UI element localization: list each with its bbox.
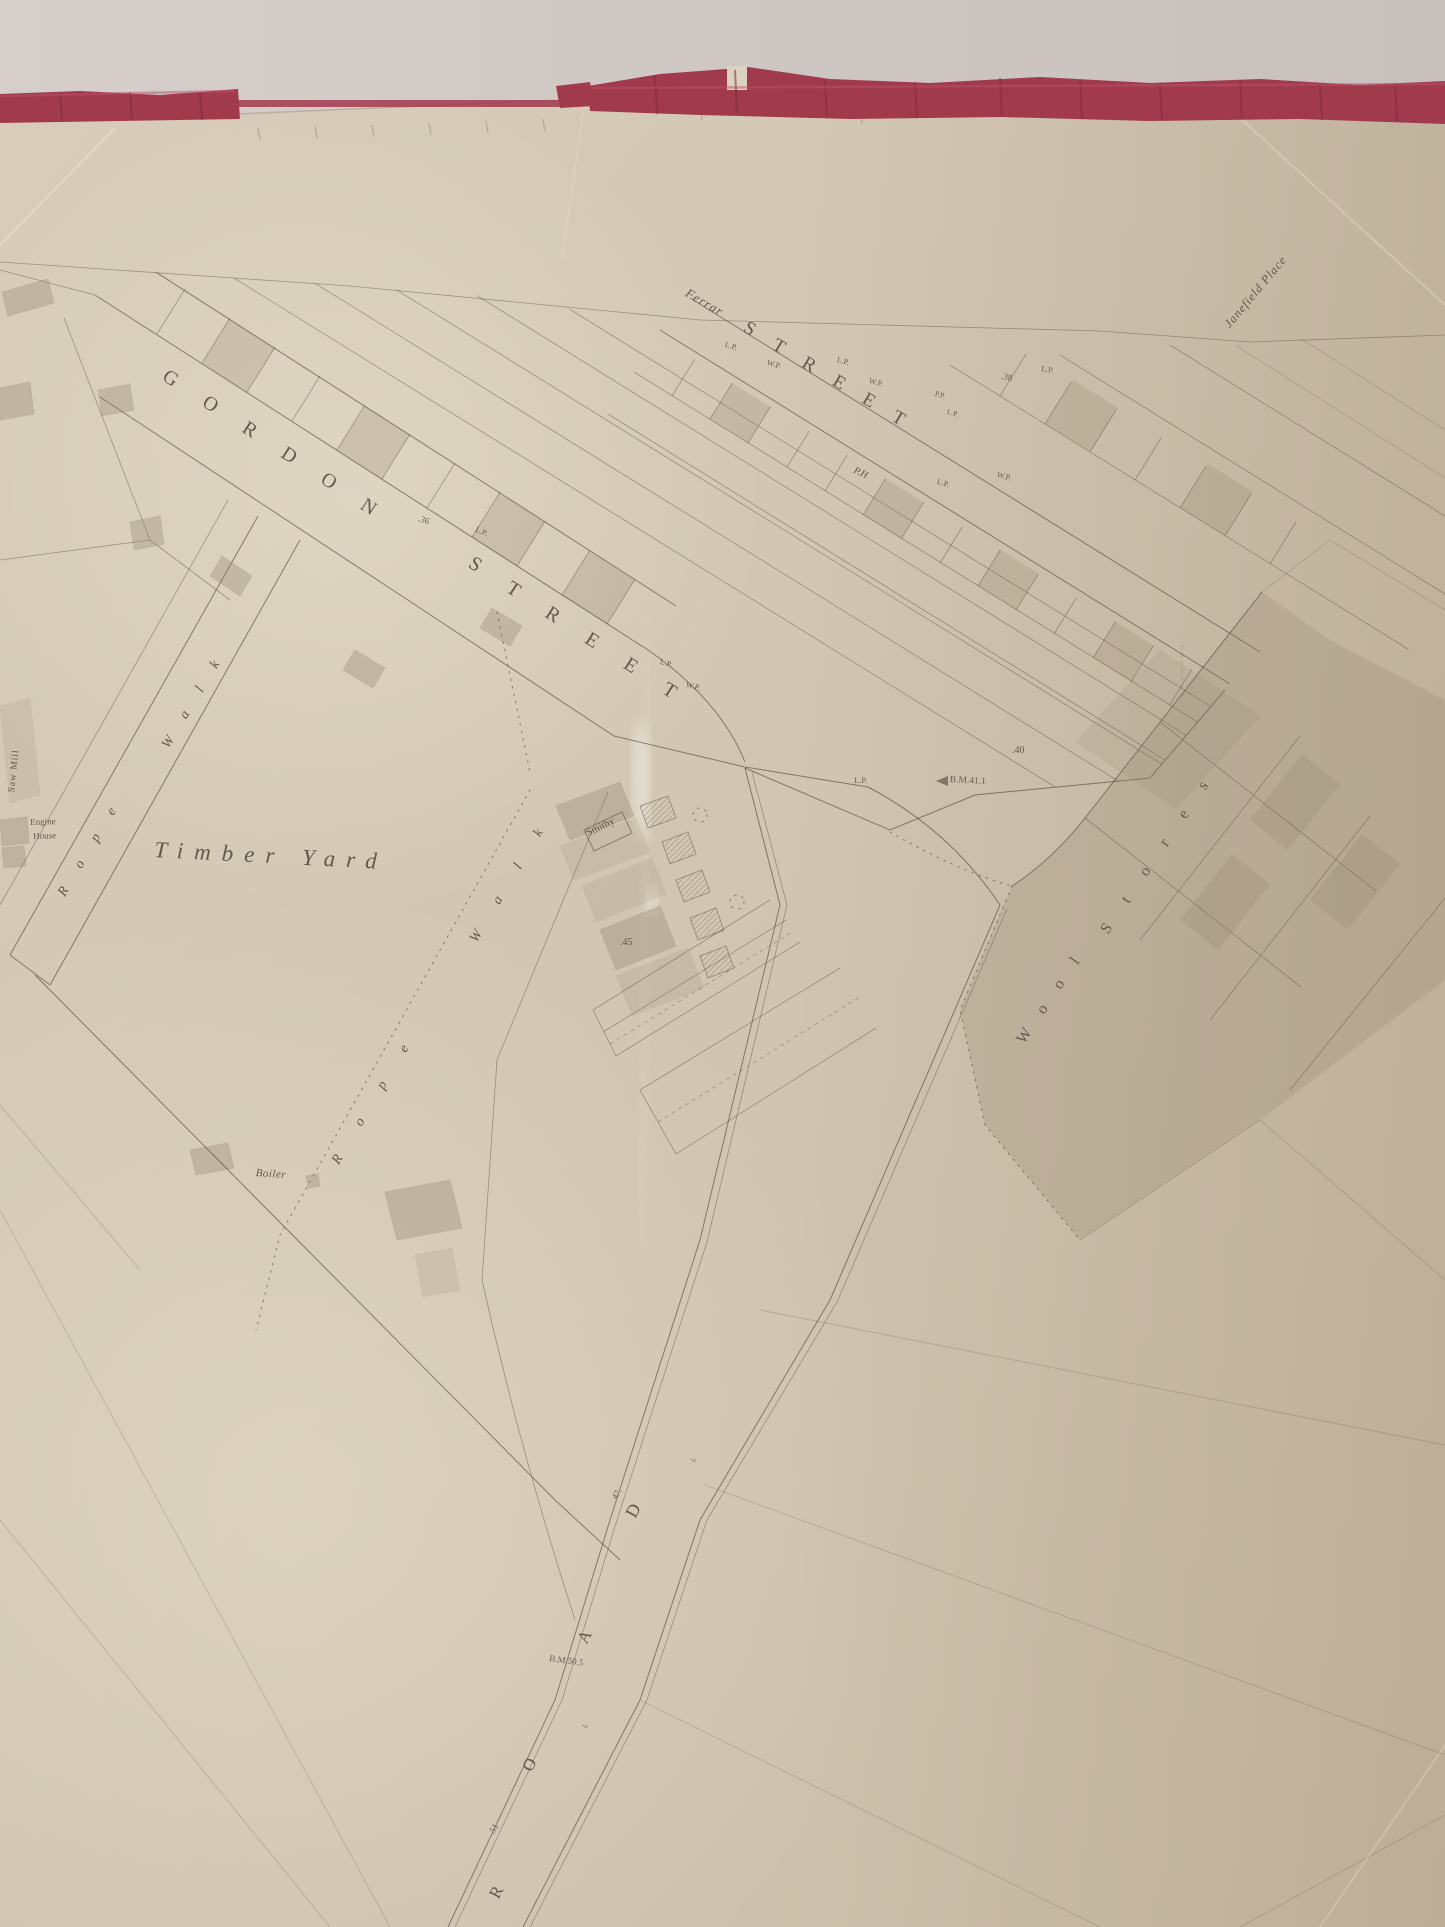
- map-label: P.P.: [934, 390, 946, 400]
- map-label: Rope: [56, 785, 132, 899]
- map-label: O: [519, 1755, 540, 1774]
- map-label: Janefield Place: [1222, 254, 1289, 330]
- map-label: L.P.: [474, 526, 488, 538]
- map-label: Boiler: [255, 1168, 286, 1181]
- map-label: W.P.: [868, 377, 884, 388]
- map-label: D: [622, 1501, 644, 1521]
- map-label: GORDON: [159, 366, 408, 537]
- map-label: STREET: [740, 318, 928, 441]
- map-label: W.P.: [766, 359, 782, 370]
- map-label: L.P.: [659, 658, 673, 669]
- map-label: R: [486, 1883, 506, 1901]
- map-label: L.P.: [946, 408, 959, 418]
- map-label: .38: [1000, 372, 1013, 383]
- map-label: L: [582, 1722, 590, 1729]
- map-label: Rope: [330, 1012, 431, 1167]
- map-label: Wool: [1014, 937, 1096, 1047]
- map-label: A: [574, 1627, 595, 1646]
- map-label: L.P.: [724, 341, 738, 352]
- map-label: L.P.: [936, 478, 950, 489]
- map-label: Timber Yard: [154, 838, 389, 873]
- map-label: L.P.: [1041, 365, 1055, 375]
- map-label: L: [690, 1456, 698, 1463]
- map-label: L.P.: [836, 356, 850, 367]
- map-label: Saw Mill: [8, 749, 22, 793]
- map-label: STREET: [465, 553, 708, 721]
- map-label: 47.: [610, 1487, 624, 1501]
- map-label: L.P.: [854, 776, 867, 785]
- map-label: Walk: [160, 638, 236, 751]
- map-label: Ferrar: [684, 286, 726, 318]
- map-label: Stores: [1098, 756, 1228, 937]
- map-label: B.M.41.1: [950, 776, 987, 787]
- map-label: B.M.50.5: [549, 1654, 584, 1668]
- map-label: Smithy: [585, 817, 617, 840]
- map-photo: FerrarSTREETGORDONSTREETTimber YardRopeW…: [0, 0, 1445, 1927]
- map-label: .51: [487, 1822, 500, 1836]
- map-labels-layer: FerrarSTREETGORDONSTREETTimber YardRopeW…: [0, 0, 1445, 1927]
- map-label: Walk: [468, 798, 564, 945]
- map-label: House: [33, 831, 56, 841]
- map-label: Engine: [30, 817, 56, 827]
- map-label: .40: [1012, 746, 1025, 756]
- map-label: P.H: [852, 466, 869, 481]
- map-label: W.P.: [996, 471, 1012, 482]
- map-label: .36: [417, 514, 431, 526]
- map-label: .45: [620, 938, 633, 948]
